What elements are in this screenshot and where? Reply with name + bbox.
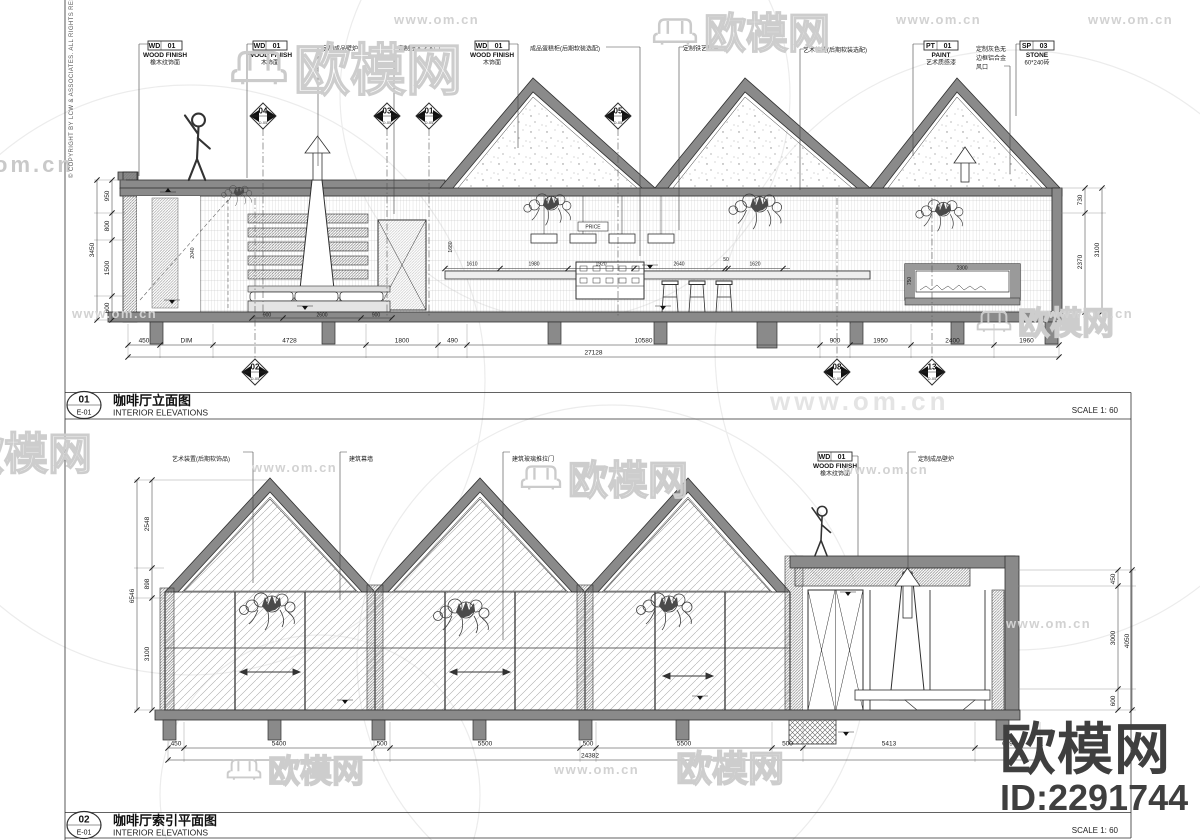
dim: 2400 [945, 338, 960, 345]
dim: 1680 [448, 241, 454, 252]
dim: 500 [583, 741, 594, 748]
masonry-pier [789, 720, 836, 744]
tag-cn: 木饰面 [261, 59, 279, 67]
dim: 10580 [634, 338, 652, 345]
dim: 900 [830, 338, 841, 345]
note-fireplace: 定制成品壁炉 [322, 45, 358, 53]
cake-cabinet [576, 262, 644, 299]
vent-arrow-icon [305, 136, 330, 153]
note-glass-door: 建筑玻璃推拉门 [512, 455, 554, 463]
tag-code: WD [819, 454, 831, 461]
drawing-title-cn: 咖啡厅索引平面图 [113, 813, 217, 828]
marker-sheet: D-05 [425, 120, 434, 125]
site-id-watermark: 欧模网 ID:2291744 [1000, 722, 1188, 816]
right-section [790, 506, 1019, 714]
dim: 900 [263, 313, 272, 319]
note-iron-lamp: 定制铁艺灯具 [683, 45, 719, 53]
dim: 898 [144, 578, 151, 589]
note-vent-line1: 定制灰色无 [976, 45, 1006, 53]
dim: 4728 [282, 338, 297, 345]
finish-tag-wd3: WD 01 WOOD FINISH 木饰面 [470, 41, 514, 67]
dim: 1920 [595, 262, 606, 268]
tag-num: 01 [838, 454, 846, 461]
tag-code: WD [149, 43, 161, 50]
dim: 3100 [144, 646, 151, 661]
human-figure [185, 114, 210, 180]
note-cake-cabinet: 成品蛋糕柜(后期软装选配) [530, 45, 600, 53]
sheet-number: E-01 [77, 410, 92, 417]
dim: 500 [782, 741, 793, 748]
marker-sheet: D-05 [251, 376, 260, 381]
drawing-title-en: INTERIOR ELEVATIONS [113, 828, 208, 838]
marker-sheet: D-05 [259, 120, 268, 125]
tag-cn: 橡木纹饰面 [150, 59, 180, 67]
marker-number: 13 [928, 363, 937, 372]
marker-sheet: D-05 [383, 120, 392, 125]
marker-number: 04 [259, 107, 268, 116]
tag-cn: 木饰面 [483, 59, 501, 67]
tag-en: PAINT [931, 52, 950, 59]
dim-total: 3100 [1094, 242, 1101, 257]
dim: 950 [104, 190, 111, 201]
dim: 50 [723, 257, 729, 263]
drawing2-elevation [155, 478, 1020, 744]
dim: 800 [104, 220, 111, 231]
cad-sheet: PRICE [0, 0, 1200, 840]
elevation-drawing-canvas: PRICE [0, 0, 1200, 840]
tag-code: PT [926, 43, 936, 50]
drawing1-title-block: 01 E-01 咖啡厅立面图 INTERIOR ELEVATIONS SCALE… [67, 392, 1119, 419]
tag-code: WD [254, 43, 266, 50]
marker-sheet: D-05 [928, 376, 937, 381]
dim: 1960 [1019, 338, 1034, 345]
glass-curtain-wall [165, 592, 790, 710]
dim: 5500 [478, 741, 493, 748]
dim-total: 3450 [89, 242, 96, 257]
tag-en: WOOD FINISH [813, 463, 857, 470]
dim: 1620 [749, 262, 760, 268]
dim: 2040 [190, 247, 196, 258]
fireplace: 2300 750 [905, 264, 1020, 305]
finish-tag-sp: SP 03 STONE 60*240砖 [1020, 41, 1054, 67]
tag-num: 03 [1040, 43, 1048, 50]
marker-number: 01 [425, 107, 434, 116]
dim: 1800 [395, 338, 410, 345]
floor-slab [108, 312, 1063, 322]
bar-counter [445, 271, 870, 279]
tag-num: 01 [944, 43, 952, 50]
marker-sheet: D-05 [833, 376, 842, 381]
dim: 2640 [673, 262, 684, 268]
fireplace-width-dim: 2300 [956, 266, 967, 272]
dim: 900 [372, 313, 381, 319]
copyright-note: © COPYRIGHT BY LCW & ASSOCIATES. ALL RIG… [69, 28, 75, 178]
drawing-title-cn: 咖啡厅立面图 [113, 393, 191, 408]
tag-cn: 橡木纹饰面 [820, 470, 850, 478]
dim: 3000 [1110, 630, 1117, 645]
tag-num: 01 [168, 43, 176, 50]
dim: 2370 [1077, 254, 1084, 269]
dim: 600 [104, 302, 111, 313]
tag-cn: 艺术质感漆 [926, 59, 956, 67]
eaves-beam [120, 188, 1062, 196]
tag-cn: 60*240砖 [1024, 59, 1049, 67]
finish-tag-wd1: WD 01 WOOD FINISH 橡木纹饰面 [143, 41, 187, 67]
sheet-number: E-01 [77, 830, 92, 837]
dim: 5413 [882, 741, 897, 748]
dim: 450 [139, 338, 150, 345]
tag-code: WD [476, 43, 488, 50]
dim: 1980 [528, 262, 539, 268]
tag-num: 01 [273, 43, 281, 50]
drawing-number: 02 [78, 815, 90, 826]
dim-total: 6546 [129, 588, 136, 603]
dim: 600 [1110, 695, 1117, 706]
drawing2-title-block: 02 E-01 咖啡厅索引平面图 INTERIOR ELEVATIONS SCA… [67, 812, 1119, 839]
dim: 5400 [272, 741, 287, 748]
dim-total: 4050 [1124, 633, 1131, 648]
footings-2 [163, 720, 1009, 740]
site-brand: 欧模网 [1000, 722, 1188, 778]
dim: 490 [447, 338, 458, 345]
drawing-title-en: INTERIOR ELEVATIONS [113, 408, 208, 418]
dim: 450 [171, 741, 182, 748]
dim: 1950 [873, 338, 888, 345]
dim: 1500 [104, 260, 111, 275]
finish-tag-wd2: WD 01 WOOD FINISH 木饰面 [248, 41, 292, 67]
floor-slab-2 [155, 710, 1020, 720]
dim-total: 24382 [581, 753, 599, 760]
tag-num: 01 [495, 43, 503, 50]
note-art-installation: 艺术装置(后期软装选配) [803, 46, 867, 54]
dim-total: 27128 [584, 350, 602, 357]
dim: 2548 [144, 516, 151, 531]
drawing-number: 01 [78, 395, 90, 406]
marker-number: 05 [614, 107, 623, 116]
note-fireplace-2: 定制成品壁炉 [918, 455, 954, 463]
price-sign: PRICE [578, 222, 608, 231]
right-wall [1052, 188, 1062, 312]
dim: 5500 [677, 741, 692, 748]
dim: 1610 [466, 262, 477, 268]
marker-number: 08 [833, 363, 842, 372]
marker-sheet: D-05 [614, 120, 623, 125]
tag-code: SP [1022, 43, 1032, 50]
note-vent-line2: 边框铝合金 [976, 54, 1006, 62]
drawing1-elevation: PRICE [108, 78, 1063, 360]
finish-tag-wd-2: WD 01 WOOD FINISH 橡木纹饰面 [813, 452, 857, 478]
dim: 500 [377, 741, 388, 748]
tag-en: WOOD FINISH [470, 52, 514, 59]
tag-en: WOOD FINISH [143, 52, 187, 59]
tag-en: WOOD FINISH [248, 52, 292, 59]
dim: 730 [1077, 194, 1084, 205]
marker-number: 03 [383, 107, 392, 116]
dim: DIM [181, 338, 193, 345]
price-sign-label: PRICE [585, 225, 601, 231]
drawing-scale: SCALE 1: 60 [1072, 826, 1119, 835]
wood-art-door [378, 220, 426, 310]
tag-en: STONE [1026, 52, 1049, 59]
bench-seating [248, 286, 390, 312]
finish-tag-pt: PT 01 PAINT 艺术质感漆 [924, 41, 958, 67]
note-vent-line3: 风口 [976, 64, 988, 71]
glass-gables [184, 499, 770, 591]
note-curtain-wall: 建筑幕墙 [349, 455, 373, 463]
marker-number: 02 [251, 363, 260, 372]
note-wood-door: 定制原木艺术门 [398, 45, 440, 53]
dim: 450 [1110, 573, 1117, 584]
flat-roof-slab [120, 180, 445, 189]
note-art-installation-2: 艺术装置(后期软饰品) [172, 455, 230, 463]
fireplace-height-dim: 750 [907, 277, 913, 286]
dim: 2600 [316, 313, 327, 319]
drawing-scale: SCALE 1: 60 [1072, 406, 1119, 415]
site-id: ID:2291744 [1000, 780, 1188, 816]
